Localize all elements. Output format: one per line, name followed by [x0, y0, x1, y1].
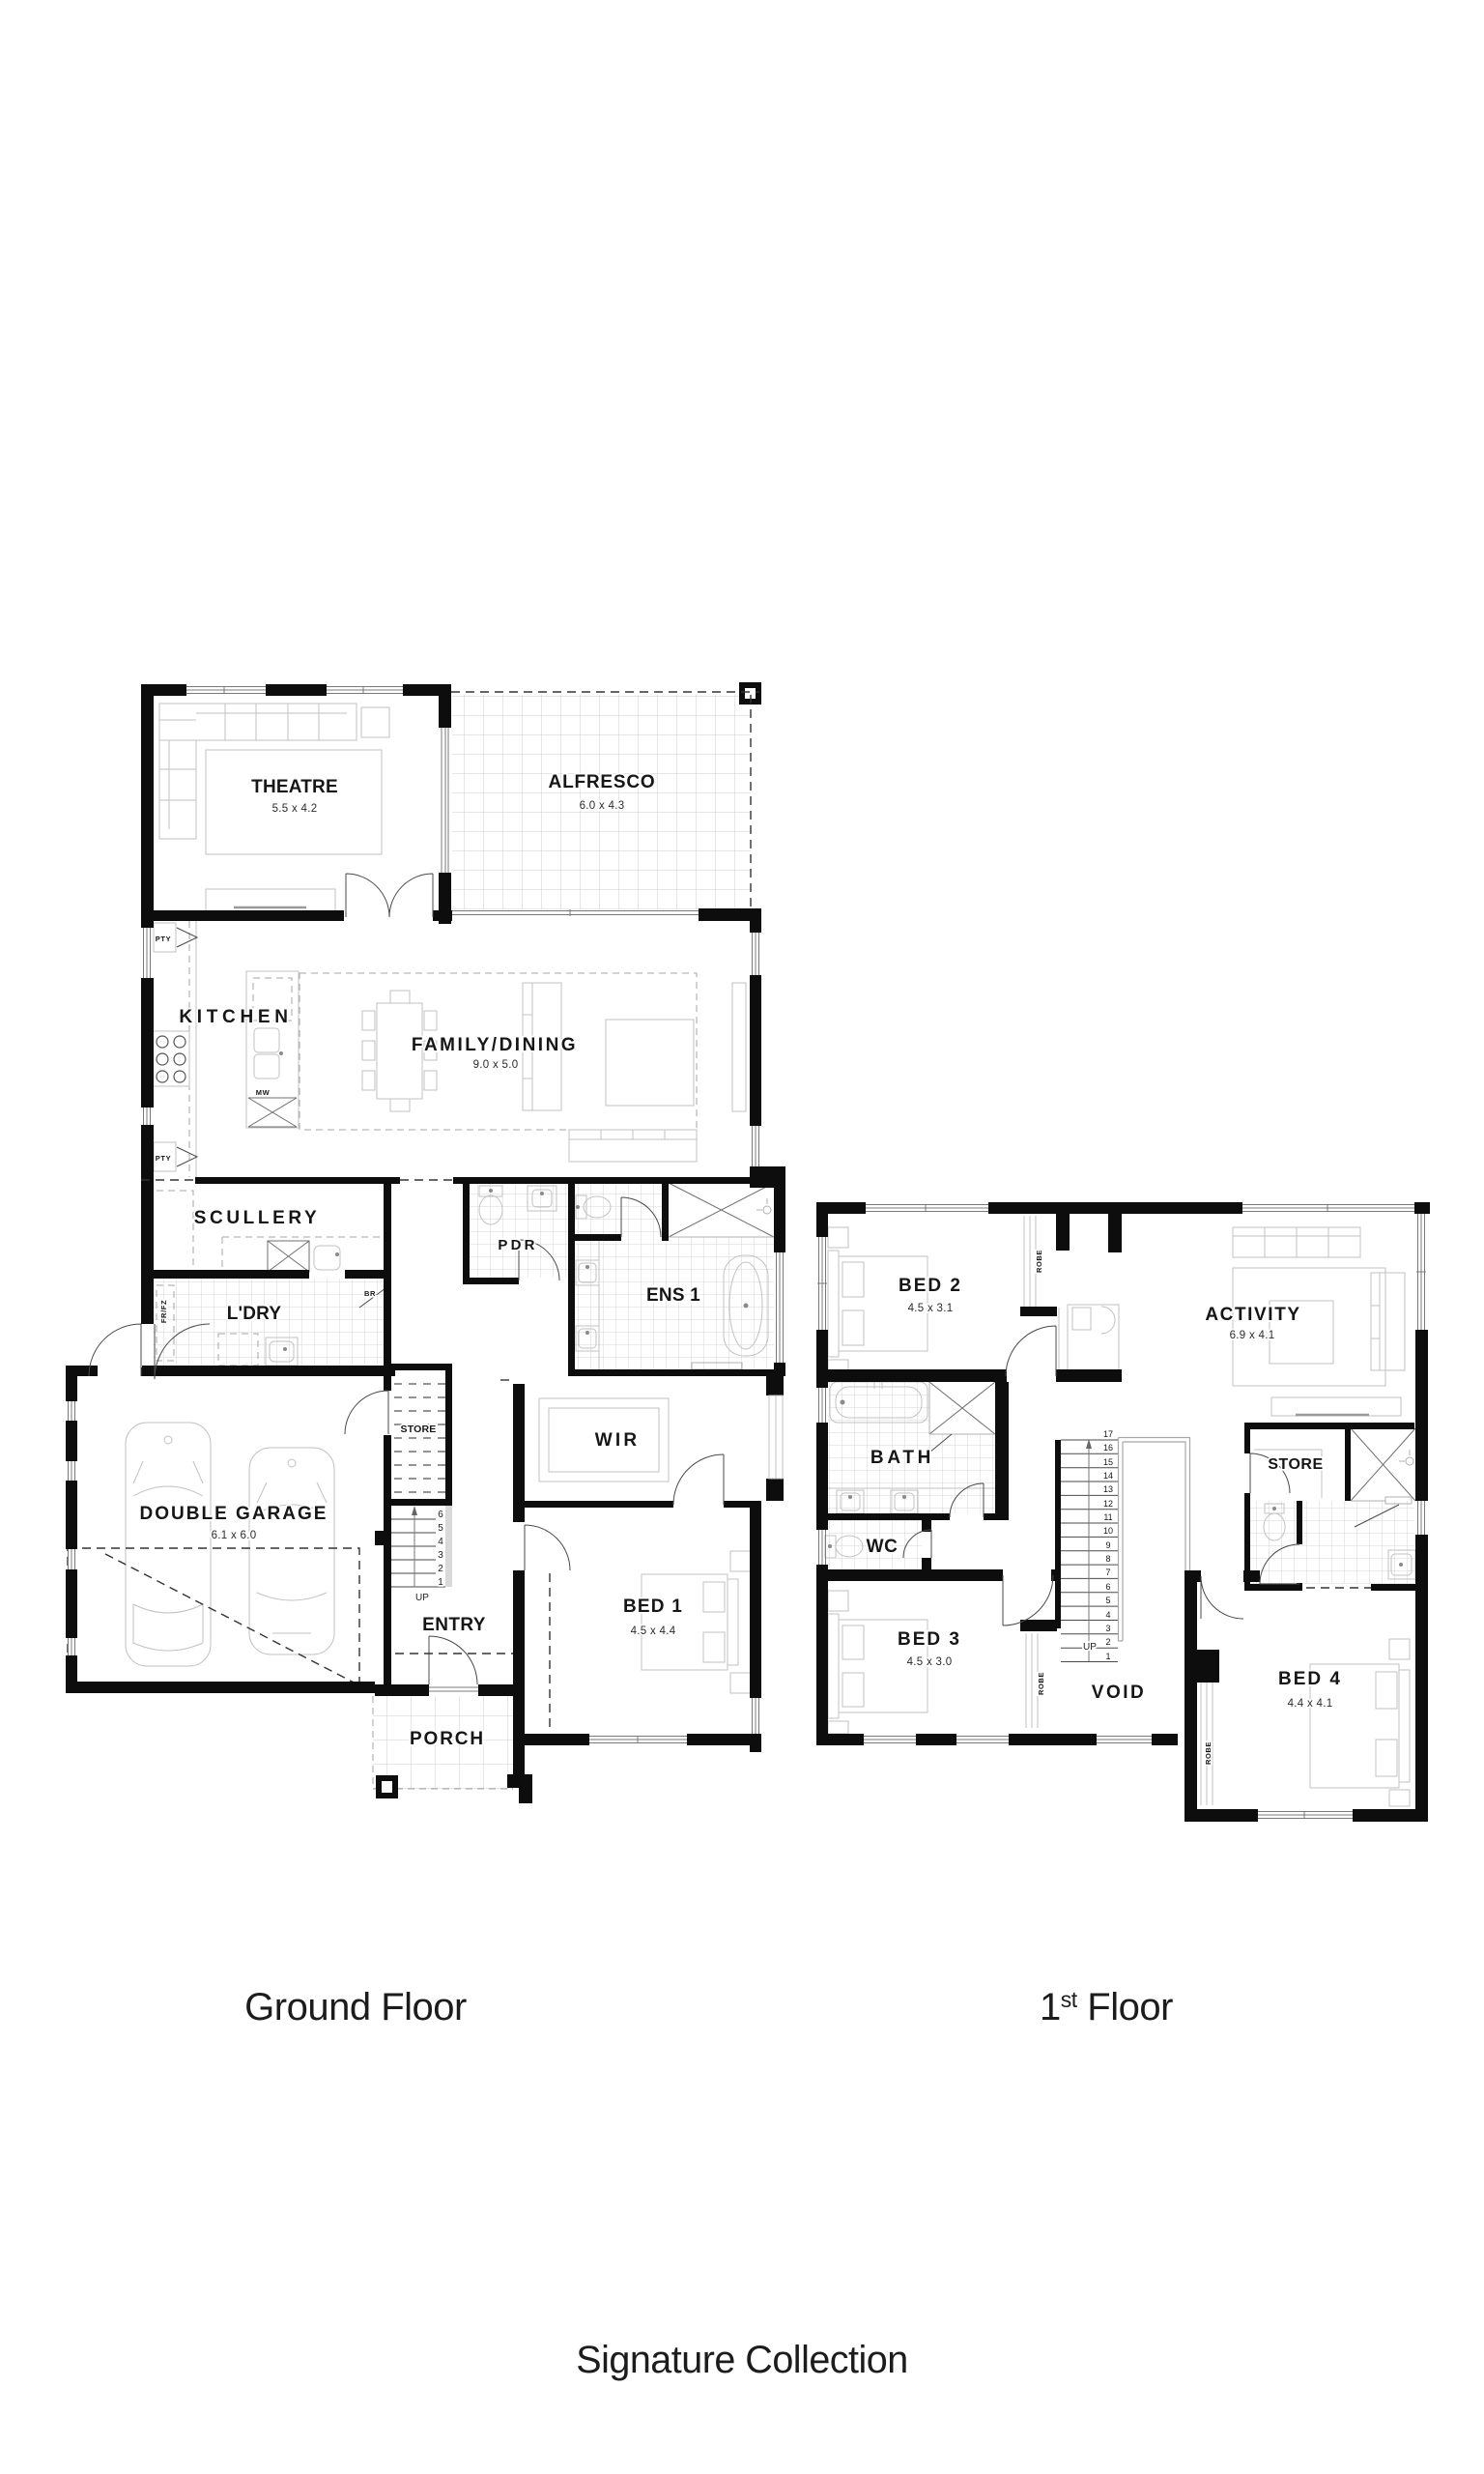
svg-text:16: 16 [1103, 1443, 1113, 1453]
svg-text:PDR: PDR [498, 1237, 537, 1253]
svg-text:FR/FZ: FR/FZ [159, 1300, 168, 1323]
svg-text:ROBE: ROBE [1037, 1672, 1045, 1695]
svg-text:FAMILY/DINING: FAMILY/DINING [412, 1035, 578, 1055]
svg-text:11: 11 [1103, 1512, 1112, 1522]
svg-text:BR: BR [364, 1289, 376, 1298]
svg-text:Ground Floor: Ground Floor [244, 1986, 467, 2028]
svg-text:4.5 x 4.4: 4.5 x 4.4 [631, 1625, 676, 1637]
svg-text:DOUBLE GARAGE: DOUBLE GARAGE [140, 1504, 328, 1524]
svg-text:WC: WC [867, 1537, 899, 1557]
svg-text:4: 4 [438, 1537, 443, 1547]
svg-text:SCULLERY: SCULLERY [194, 1208, 321, 1228]
svg-text:6: 6 [1105, 1582, 1110, 1592]
svg-text:ACTIVITY: ACTIVITY [1205, 1305, 1300, 1325]
svg-text:BATH: BATH [870, 1448, 934, 1468]
svg-text:10: 10 [1103, 1526, 1113, 1536]
svg-text:VOID: VOID [1092, 1683, 1146, 1703]
svg-text:4.5 x 3.0: 4.5 x 3.0 [907, 1656, 953, 1668]
svg-text:ROBE: ROBE [1204, 1741, 1213, 1765]
svg-text:4.4 x 4.1: 4.4 x 4.1 [1288, 1698, 1333, 1710]
svg-text:STORE: STORE [401, 1424, 437, 1435]
svg-text:13: 13 [1103, 1484, 1113, 1494]
svg-text:BED 2: BED 2 [899, 1276, 962, 1296]
svg-text:2: 2 [438, 1564, 443, 1574]
svg-text:5.5 x 4.2: 5.5 x 4.2 [272, 803, 318, 815]
svg-text:9: 9 [1105, 1540, 1110, 1550]
svg-text:12: 12 [1103, 1499, 1113, 1509]
svg-text:MW: MW [256, 1088, 271, 1097]
svg-text:6.9 x 4.1: 6.9 x 4.1 [1230, 1330, 1275, 1341]
svg-text:1st Floor: 1st Floor [1040, 1986, 1173, 2028]
svg-text:THEATRE: THEATRE [251, 777, 338, 797]
svg-text:8: 8 [1105, 1554, 1110, 1564]
svg-text:ROBE: ROBE [1035, 1250, 1043, 1273]
svg-text:3: 3 [1105, 1624, 1110, 1633]
svg-text:BED 3: BED 3 [898, 1629, 961, 1650]
svg-text:9.0 x 5.0: 9.0 x 5.0 [473, 1059, 519, 1071]
svg-text:3: 3 [438, 1550, 443, 1561]
svg-text:4: 4 [1105, 1610, 1110, 1620]
svg-text:15: 15 [1103, 1457, 1113, 1467]
svg-text:ENS 1: ENS 1 [646, 1285, 700, 1306]
svg-text:5: 5 [1105, 1596, 1110, 1605]
svg-text:PORCH: PORCH [410, 1729, 485, 1749]
svg-text:1: 1 [438, 1577, 443, 1588]
svg-text:KITCHEN: KITCHEN [179, 1007, 292, 1027]
svg-text:1: 1 [1105, 1652, 1110, 1661]
svg-text:2: 2 [1105, 1637, 1110, 1647]
svg-text:PTY: PTY [156, 935, 171, 943]
svg-text:WIR: WIR [595, 1430, 641, 1451]
svg-text:6: 6 [438, 1510, 443, 1520]
svg-text:Signature Collection: Signature Collection [576, 2339, 908, 2381]
svg-text:BED 1: BED 1 [623, 1597, 683, 1617]
svg-text:UP: UP [1083, 1642, 1097, 1653]
svg-text:UP: UP [415, 1593, 429, 1603]
svg-text:7: 7 [1105, 1568, 1110, 1577]
svg-text:4.5 x 3.1: 4.5 x 3.1 [908, 1303, 954, 1314]
svg-text:6.0 x 4.3: 6.0 x 4.3 [580, 800, 625, 812]
svg-text:L'DRY: L'DRY [227, 1304, 282, 1324]
svg-text:5: 5 [438, 1523, 443, 1534]
svg-text:BED 4: BED 4 [1278, 1669, 1342, 1689]
svg-text:17: 17 [1103, 1429, 1113, 1439]
svg-text:6.1 x 6.0: 6.1 x 6.0 [212, 1530, 257, 1541]
svg-text:PTY: PTY [156, 1154, 171, 1163]
svg-text:STORE: STORE [1268, 1456, 1323, 1473]
svg-text:ALFRESCO: ALFRESCO [549, 772, 656, 792]
svg-text:14: 14 [1103, 1471, 1113, 1481]
svg-text:ENTRY: ENTRY [422, 1615, 486, 1635]
